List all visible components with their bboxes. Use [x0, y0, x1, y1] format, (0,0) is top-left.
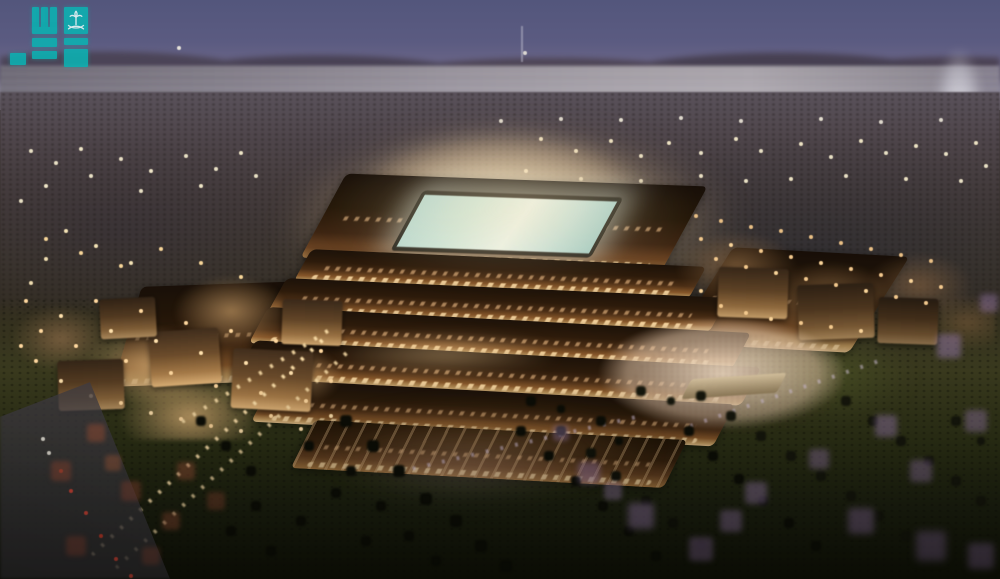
- logo-block: [32, 51, 57, 59]
- stadium-aerial-rendering: Saudi Press Agency (SPA / واس) logo: [0, 0, 1000, 579]
- village-building: [717, 267, 789, 319]
- purple-blossom-trees: [0, 0, 2, 2]
- path-ambient-glow: [300, 430, 630, 510]
- village-building: [148, 328, 222, 388]
- logo-block: [64, 49, 88, 67]
- village-building: [99, 297, 157, 340]
- village-building: [877, 297, 939, 345]
- palm-and-swords-icon: [66, 9, 86, 32]
- logo-block: [64, 38, 88, 45]
- logo-block: [32, 27, 57, 34]
- spa-logo-watermark: Saudi Press Agency (SPA / واس) logo: [10, 7, 88, 67]
- logo-block: [10, 53, 26, 65]
- logo-block: [32, 38, 57, 47]
